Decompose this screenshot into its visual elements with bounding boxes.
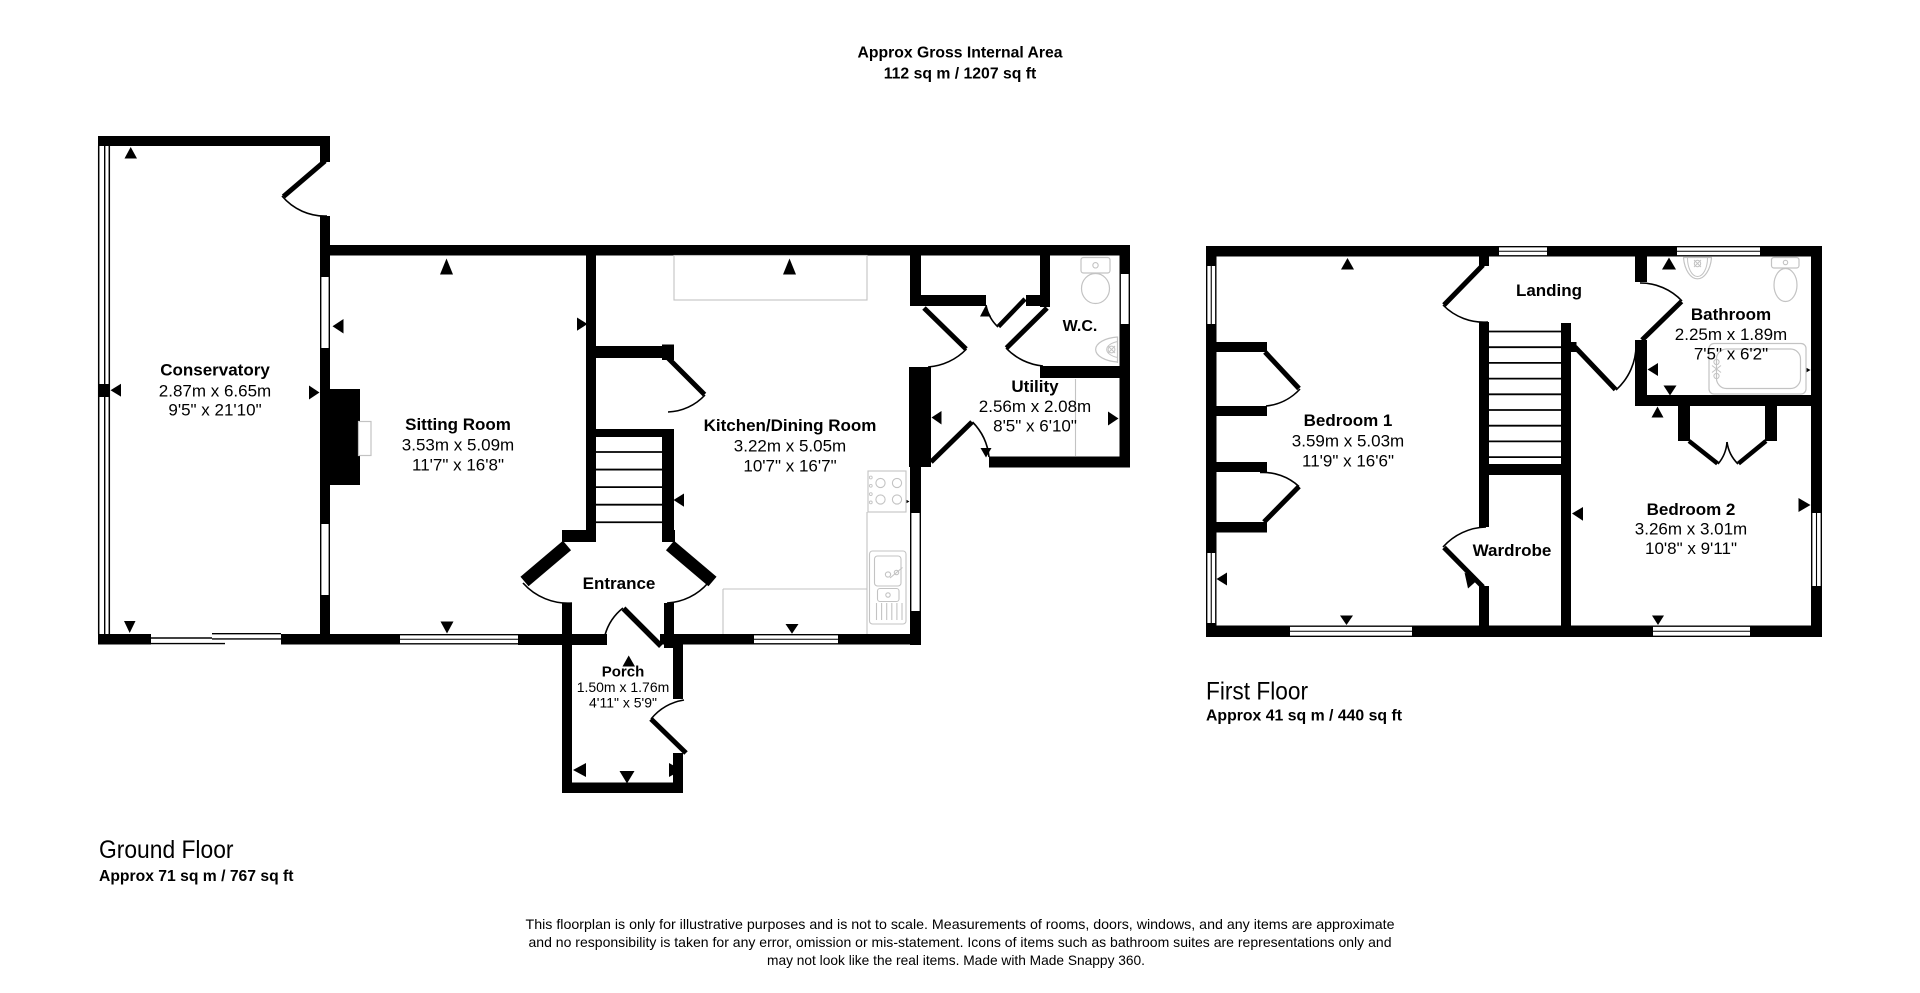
svg-text:10'8" x 9'11": 10'8" x 9'11" xyxy=(1645,539,1737,558)
svg-text:W.C.: W.C. xyxy=(1063,318,1098,335)
svg-text:7'5" x 6'2": 7'5" x 6'2" xyxy=(1694,345,1768,364)
svg-text:Bedroom 2: Bedroom 2 xyxy=(1647,500,1736,519)
svg-text:Landing: Landing xyxy=(1516,281,1582,300)
svg-text:Porch: Porch xyxy=(602,664,645,681)
svg-text:Bathroom: Bathroom xyxy=(1691,305,1771,324)
svg-text:3.26m x 3.01m: 3.26m x 3.01m xyxy=(1635,520,1747,539)
svg-text:4'11" x 5'9": 4'11" x 5'9" xyxy=(589,695,657,711)
svg-text:3.53m x 5.09m: 3.53m x 5.09m xyxy=(402,436,514,455)
svg-text:Approx 71 sq m / 767 sq ft: Approx 71 sq m / 767 sq ft xyxy=(99,868,294,885)
svg-text:Entrance: Entrance xyxy=(583,574,656,593)
svg-text:Kitchen/Dining Room: Kitchen/Dining Room xyxy=(704,416,877,435)
svg-text:112 sq m / 1207 sq ft: 112 sq m / 1207 sq ft xyxy=(884,66,1037,83)
svg-text:3.22m x 5.05m: 3.22m x 5.05m xyxy=(734,437,846,456)
svg-text:2.25m x 1.89m: 2.25m x 1.89m xyxy=(1675,325,1787,344)
svg-text:8'5" x 6'10": 8'5" x 6'10" xyxy=(993,417,1077,436)
svg-text:may not look like the real ite: may not look like the real items. Made w… xyxy=(767,952,1145,968)
svg-text:Approx 41 sq m / 440 sq ft: Approx 41 sq m / 440 sq ft xyxy=(1206,708,1403,725)
svg-text:10'7" x 16'7": 10'7" x 16'7" xyxy=(743,457,836,476)
svg-text:2.56m x 2.08m: 2.56m x 2.08m xyxy=(979,397,1091,416)
svg-text:Approx Gross Internal Area: Approx Gross Internal Area xyxy=(858,45,1063,62)
svg-text:Conservatory: Conservatory xyxy=(160,361,270,380)
svg-text:9'5" x 21'10": 9'5" x 21'10" xyxy=(168,401,261,420)
svg-text:1.50m x 1.76m: 1.50m x 1.76m xyxy=(577,679,670,695)
svg-text:and no responsibility is taken: and no responsibility is taken for any e… xyxy=(529,934,1392,950)
svg-text:Ground Floor: Ground Floor xyxy=(99,836,234,864)
svg-text:This floorplan is only for ill: This floorplan is only for illustrative … xyxy=(526,916,1395,932)
svg-text:11'9" x 16'6": 11'9" x 16'6" xyxy=(1302,451,1394,470)
svg-text:Bedroom 1: Bedroom 1 xyxy=(1304,411,1393,430)
svg-text:3.59m x 5.03m: 3.59m x 5.03m xyxy=(1292,431,1404,450)
svg-text:11'7" x 16'8": 11'7" x 16'8" xyxy=(412,456,504,475)
svg-text:Sitting Room: Sitting Room xyxy=(405,415,511,434)
svg-text:Utility: Utility xyxy=(1011,377,1059,396)
svg-text:First Floor: First Floor xyxy=(1206,678,1308,706)
svg-text:Wardrobe: Wardrobe xyxy=(1473,541,1552,560)
svg-text:2.87m x 6.65m: 2.87m x 6.65m xyxy=(159,382,271,401)
